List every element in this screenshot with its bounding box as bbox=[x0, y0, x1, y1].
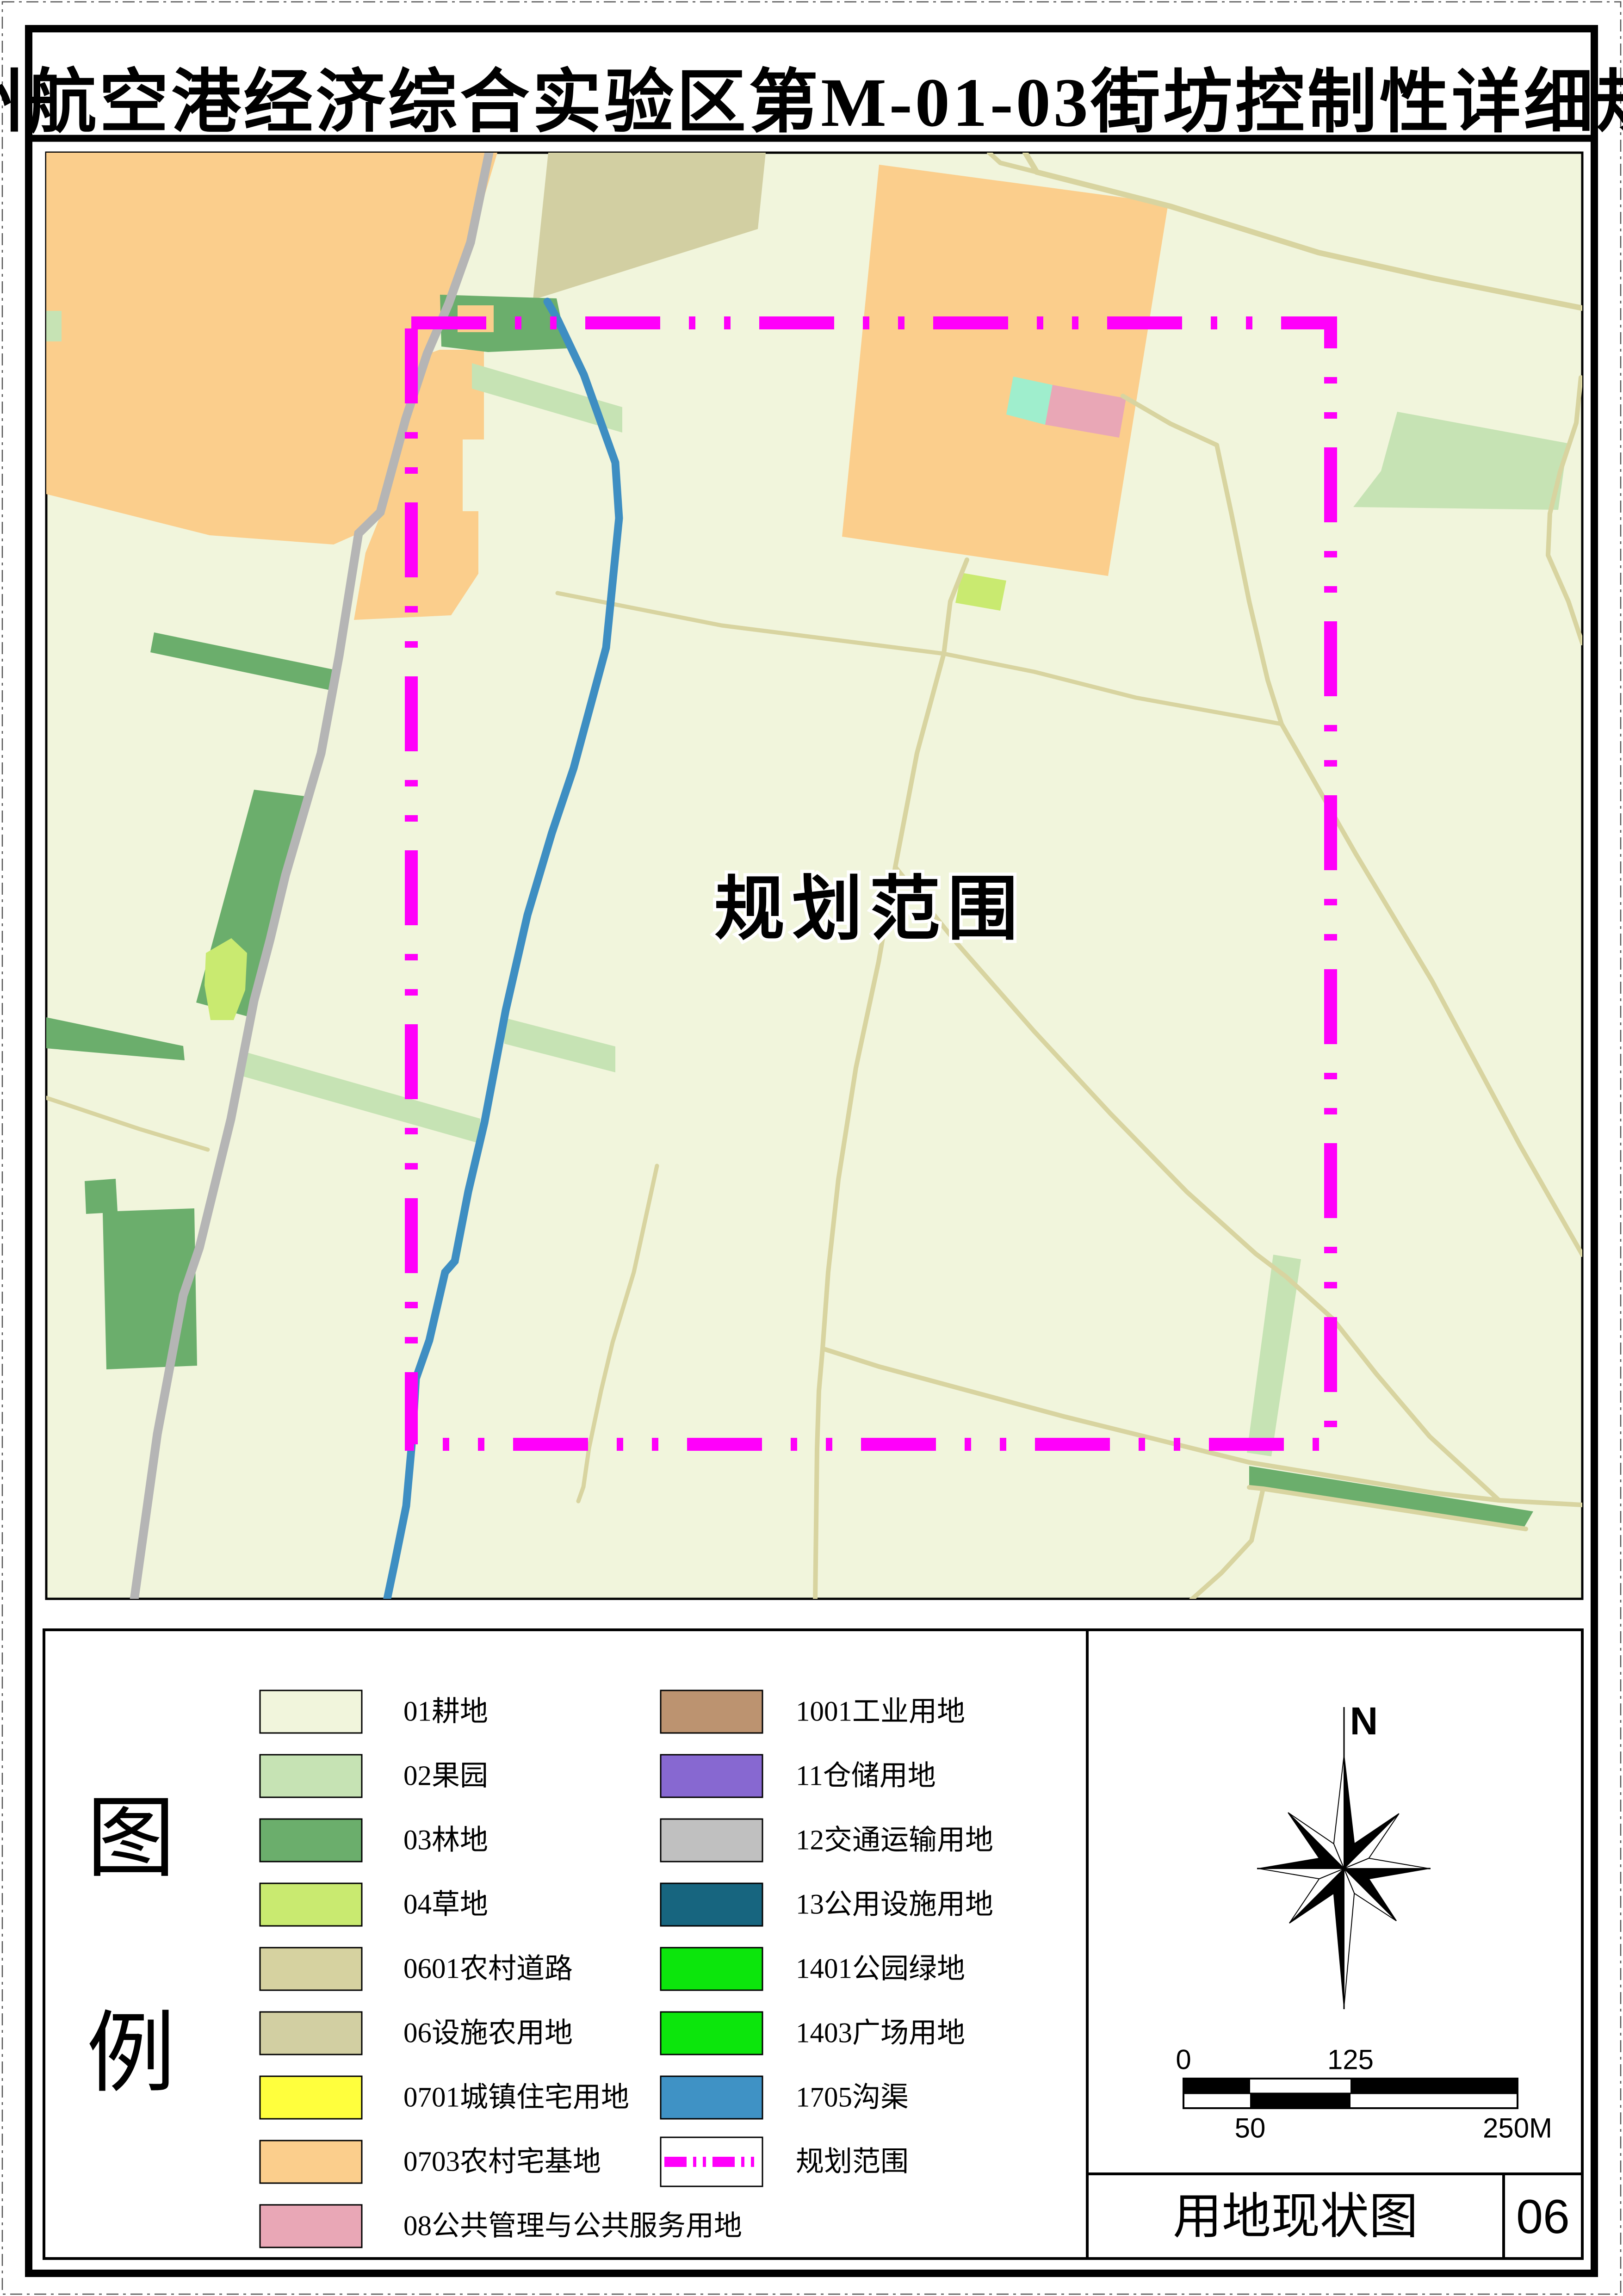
swatch-0703 bbox=[260, 2141, 362, 2183]
swatch-13 bbox=[661, 1883, 762, 1926]
sheet-number: 06 bbox=[1516, 2190, 1570, 2244]
swatch-0601 bbox=[260, 1948, 362, 1990]
legend-label: 1001工业用地 bbox=[796, 1696, 965, 1727]
swatch-02 bbox=[260, 1755, 362, 1797]
scale-seg bbox=[1250, 2093, 1350, 2108]
legend-label: 规划范围 bbox=[796, 2147, 909, 2178]
legend-label: 06设施农用地 bbox=[403, 2018, 573, 2049]
scale-seg bbox=[1183, 2079, 1250, 2093]
swatch-01 bbox=[260, 1690, 362, 1733]
legend-label: 0601农村道路 bbox=[403, 1954, 573, 1985]
swatch-1001 bbox=[661, 1690, 762, 1733]
legend-label: 0701城镇住宅用地 bbox=[403, 2082, 629, 2113]
scale-tick-250: 250M bbox=[1483, 2113, 1552, 2144]
legend-label: 1403广场用地 bbox=[796, 2018, 965, 2049]
scale-tick-0: 0 bbox=[1176, 2044, 1191, 2075]
swatch-08 bbox=[260, 2205, 362, 2247]
scale-seg bbox=[1350, 2079, 1518, 2093]
swatch-06 bbox=[260, 2012, 362, 2055]
swatch-1705 bbox=[661, 2076, 762, 2119]
scale-tick-125: 125 bbox=[1327, 2044, 1374, 2075]
legend-heading-bottom: 例 bbox=[87, 2005, 175, 2104]
swatch-0701 bbox=[260, 2076, 362, 2119]
legend-label: 08公共管理与公共服务用地 bbox=[403, 2211, 742, 2242]
legend-heading-top: 图 bbox=[87, 1790, 175, 1888]
legend-label: 03林地 bbox=[403, 1825, 488, 1856]
swatch-12 bbox=[661, 1819, 762, 1862]
swatch-03 bbox=[260, 1819, 362, 1862]
scale-tick-50: 50 bbox=[1235, 2113, 1266, 2144]
scope-label: 规划范围 bbox=[714, 871, 1025, 948]
swatch-11 bbox=[661, 1755, 762, 1797]
legend-label: 12交通运输用地 bbox=[796, 1825, 993, 1856]
swatch-1403 bbox=[661, 2012, 762, 2055]
compass-north-label: N bbox=[1350, 1699, 1378, 1743]
orchard-strip-edge bbox=[46, 311, 62, 341]
drawing-name: 用地现状图 bbox=[1173, 2190, 1418, 2244]
swatch-04 bbox=[260, 1883, 362, 1926]
legend-label: 01耕地 bbox=[403, 1696, 488, 1727]
plan-sheet: 郑州航空港经济综合实验区第M-01-03街坊控制性详细规划 bbox=[0, 0, 1623, 2296]
legend-label: 11仓储用地 bbox=[796, 1761, 936, 1792]
swatch-1401 bbox=[661, 1948, 762, 1990]
legend-label: 13公用设施用地 bbox=[796, 1889, 993, 1920]
legend-label: 04草地 bbox=[403, 1889, 488, 1920]
legend-label: 1705沟渠 bbox=[796, 2082, 909, 2113]
legend-label: 0703农村宅基地 bbox=[403, 2147, 601, 2178]
sheet-title: 郑州航空港经济综合实验区第M-01-03街坊控制性详细规划 bbox=[0, 64, 1623, 141]
legend-label: 02果园 bbox=[403, 1761, 488, 1792]
legend-label: 1401公园绿地 bbox=[796, 1954, 965, 1985]
